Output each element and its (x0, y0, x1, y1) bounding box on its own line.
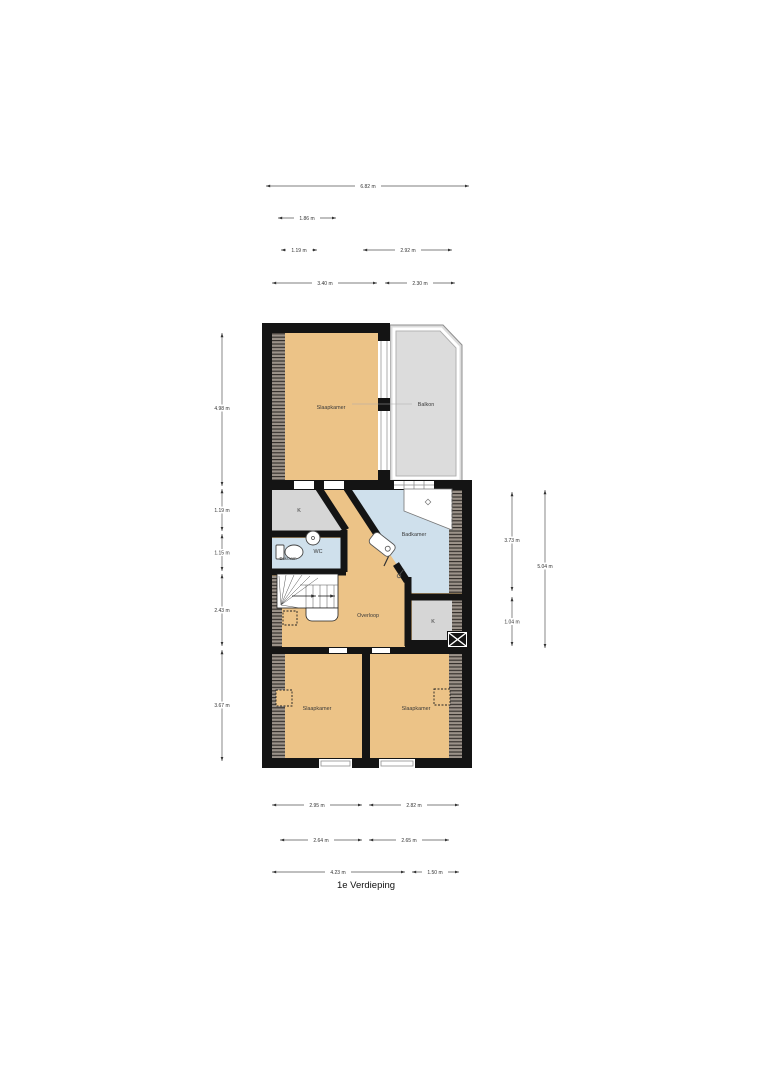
dim-top-row2: 1.86 m (299, 216, 314, 222)
dimension-lines-left: 4.98 m 1.19 m 1.15 m 2.43 m 3.67 m (210, 333, 234, 761)
floor-plan-canvas: Slaapkamer Balkon K WC Dakraam Badkamer … (0, 0, 763, 1080)
dim-left-4: 2.43 m (214, 608, 229, 614)
dim-right-outer: 5.04 m (537, 564, 552, 570)
dim-right-inner-bottom: 1.04 m (504, 620, 519, 626)
room-label-wc: WC (314, 549, 323, 555)
dim-left-5: 3.67 m (214, 703, 229, 709)
dim-top-total: 6.82 m (360, 184, 375, 190)
dim-top-row3-left: 1.19 m (291, 248, 306, 254)
sloped-ceiling-hatch (449, 654, 462, 758)
dim-top-row4-left: 3.40 m (317, 281, 332, 287)
window-wall-slaapkamer-balkon (378, 333, 390, 480)
window-slaapkamer-right (379, 759, 415, 768)
room-label-slaapkamer-right: Slaapkamer (402, 706, 431, 712)
dim-left-2: 1.19 m (214, 508, 229, 514)
dim-left-3: 1.15 m (214, 551, 229, 557)
roof-window-icon (283, 611, 297, 625)
dim-bottom-row3-left: 4.23 m (330, 870, 345, 876)
dim-left-1: 4.98 m (214, 406, 229, 412)
sink-icon (306, 531, 320, 545)
room-label-slaapkamer-left: Slaapkamer (303, 706, 332, 712)
dim-bottom-row2-right: 2.65 m (401, 838, 416, 844)
roof-window-icon (276, 690, 292, 706)
window-slaapkamer-left (319, 759, 352, 768)
dimension-lines-bottom: 2.95 m 2.82 m 2.64 m 2.65 m 4.23 m 1.50 … (272, 802, 459, 877)
room-label-kast-top: K (297, 508, 301, 514)
dim-bottom-row2-left: 2.64 m (313, 838, 328, 844)
shaft-icon (447, 631, 468, 648)
room-label-balkon: Balkon (418, 402, 434, 408)
dim-bottom-row1-left: 2.95 m (309, 803, 324, 809)
dimension-lines-top: 6.82 m 1.86 m 1.19 m 2.92 m 3.40 m 2.30 … (266, 183, 469, 288)
roof-window-icon (434, 689, 450, 705)
room-label-overloop: Overloop (357, 613, 379, 619)
dim-bottom-row1-right: 2.82 m (406, 803, 421, 809)
page-title: 1e Verdieping (337, 880, 395, 891)
dim-bottom-row3-right: 1.50 m (427, 870, 442, 876)
dim-right-inner-top: 3.73 m (504, 538, 519, 544)
window-badkamer-balkon (394, 481, 434, 489)
room-label-slaapkamer-top: Slaapkamer (317, 405, 346, 411)
dimension-lines-right: 3.73 m 1.04 m 5.04 m (500, 490, 557, 648)
stair-landing (306, 608, 338, 621)
room-label-badkamer: Badkamer (402, 532, 427, 538)
room-label-kast-right: K (431, 619, 435, 625)
room-label-dakraam: Dakraam (280, 556, 297, 561)
sloped-ceiling-hatch (272, 333, 285, 480)
dim-top-row4-right: 2.30 m (412, 281, 427, 287)
dim-top-row3-right: 2.92 m (400, 248, 415, 254)
